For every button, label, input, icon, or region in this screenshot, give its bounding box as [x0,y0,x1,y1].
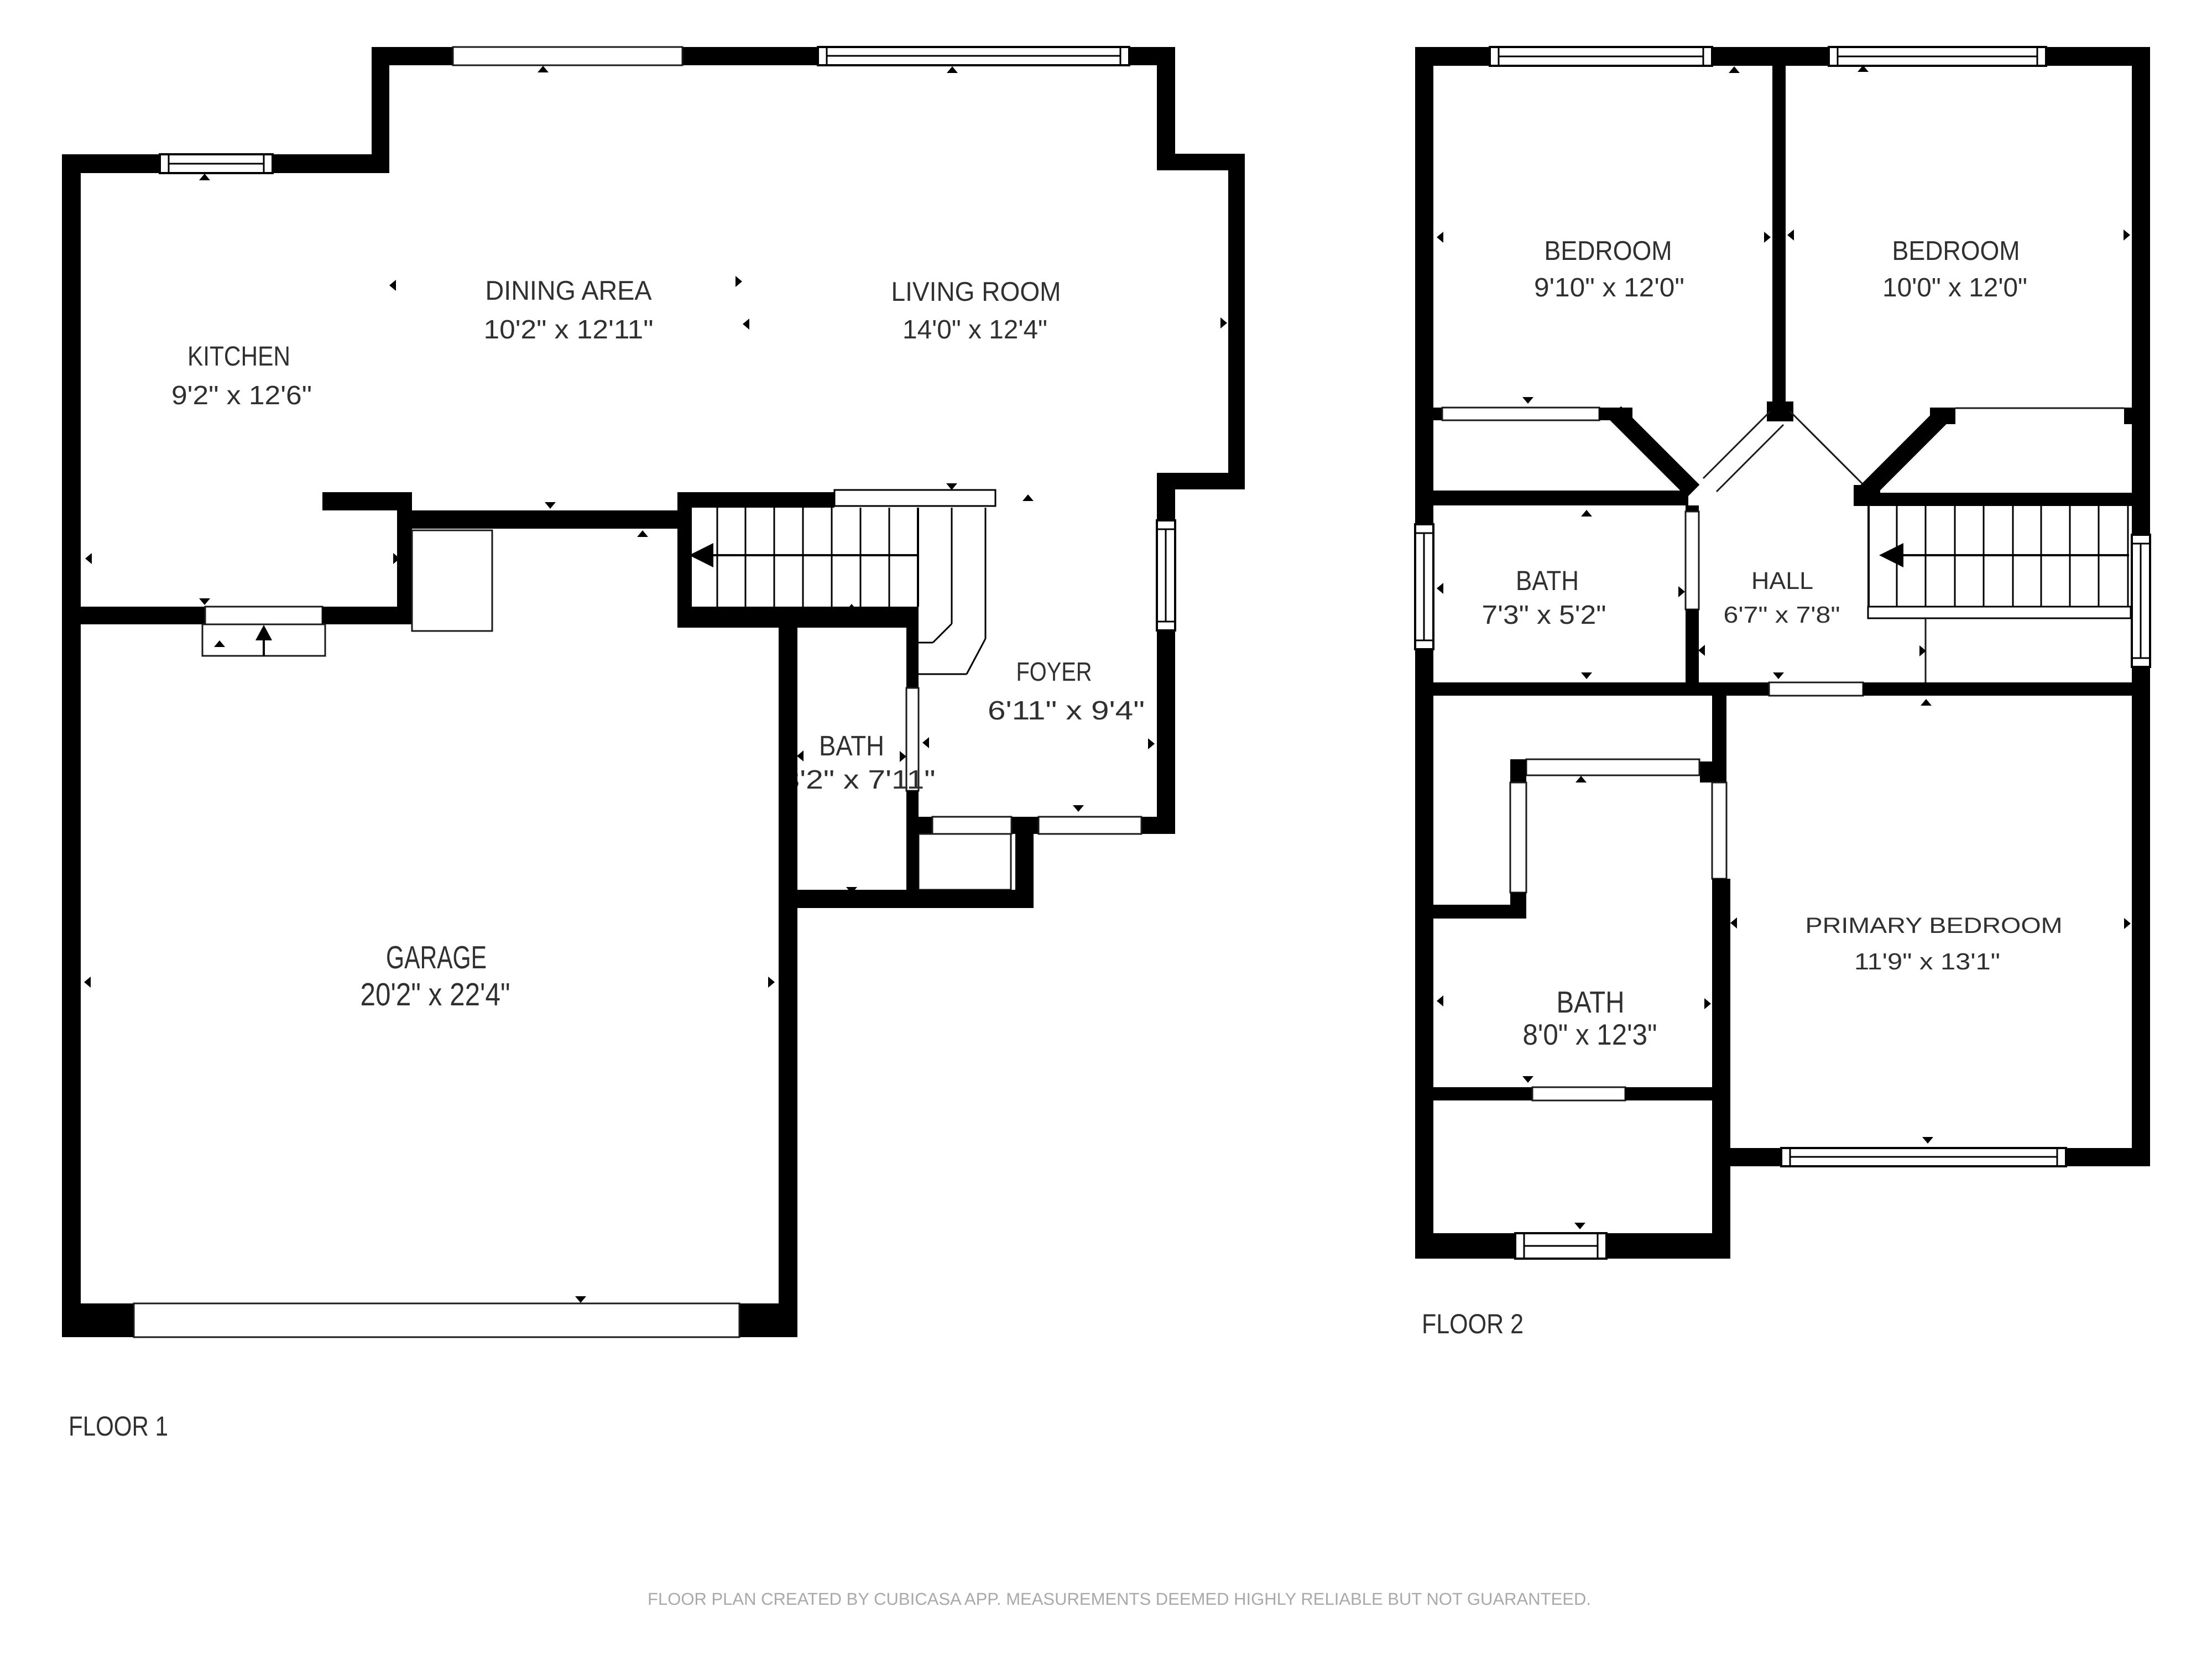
svg-text:GARAGE: GARAGE [386,940,487,975]
svg-text:6'11" x 9'4": 6'11" x 9'4" [988,696,1145,726]
svg-text:10'2" x 12'11": 10'2" x 12'11" [484,315,654,345]
svg-text:7'3" x 5'2": 7'3" x 5'2" [1482,601,1606,630]
svg-text:8'0" x 12'3": 8'0" x 12'3" [1523,1019,1657,1051]
svg-text:BEDROOM: BEDROOM [1545,236,1672,266]
svg-text:BATH: BATH [1557,985,1625,1019]
svg-text:9'2" x 12'6": 9'2" x 12'6" [171,381,312,410]
svg-text:DINING AREA: DINING AREA [486,276,652,306]
svg-text:BATH: BATH [1516,565,1579,596]
svg-text:3'2" x 7'11": 3'2" x 7'11" [782,765,936,795]
svg-text:BEDROOM: BEDROOM [1892,236,2020,266]
svg-text:20'2" x 22'4": 20'2" x 22'4" [361,977,510,1013]
svg-text:14'0" x 12'4": 14'0" x 12'4" [902,315,1047,345]
svg-text:KITCHEN: KITCHEN [187,341,290,372]
svg-text:10'0" x 12'0": 10'0" x 12'0" [1882,273,2027,302]
svg-text:HALL: HALL [1751,567,1813,594]
svg-text:11'9" x 13'1": 11'9" x 13'1" [1854,948,2000,974]
svg-text:FLOOR 1: FLOOR 1 [69,1411,168,1442]
svg-text:FOYER: FOYER [1016,658,1092,687]
svg-text:9'10" x 12'0": 9'10" x 12'0" [1534,273,1684,302]
svg-text:PRIMARY BEDROOM: PRIMARY BEDROOM [1806,914,2063,938]
svg-text:LIVING ROOM: LIVING ROOM [891,277,1061,307]
svg-text:6'7" x 7'8": 6'7" x 7'8" [1724,602,1840,628]
svg-text:FLOOR 2: FLOOR 2 [1422,1308,1524,1339]
svg-text:BATH: BATH [819,730,884,761]
svg-text:FLOOR PLAN CREATED BY CUBICASA: FLOOR PLAN CREATED BY CUBICASA APP. MEAS… [648,1589,1591,1609]
